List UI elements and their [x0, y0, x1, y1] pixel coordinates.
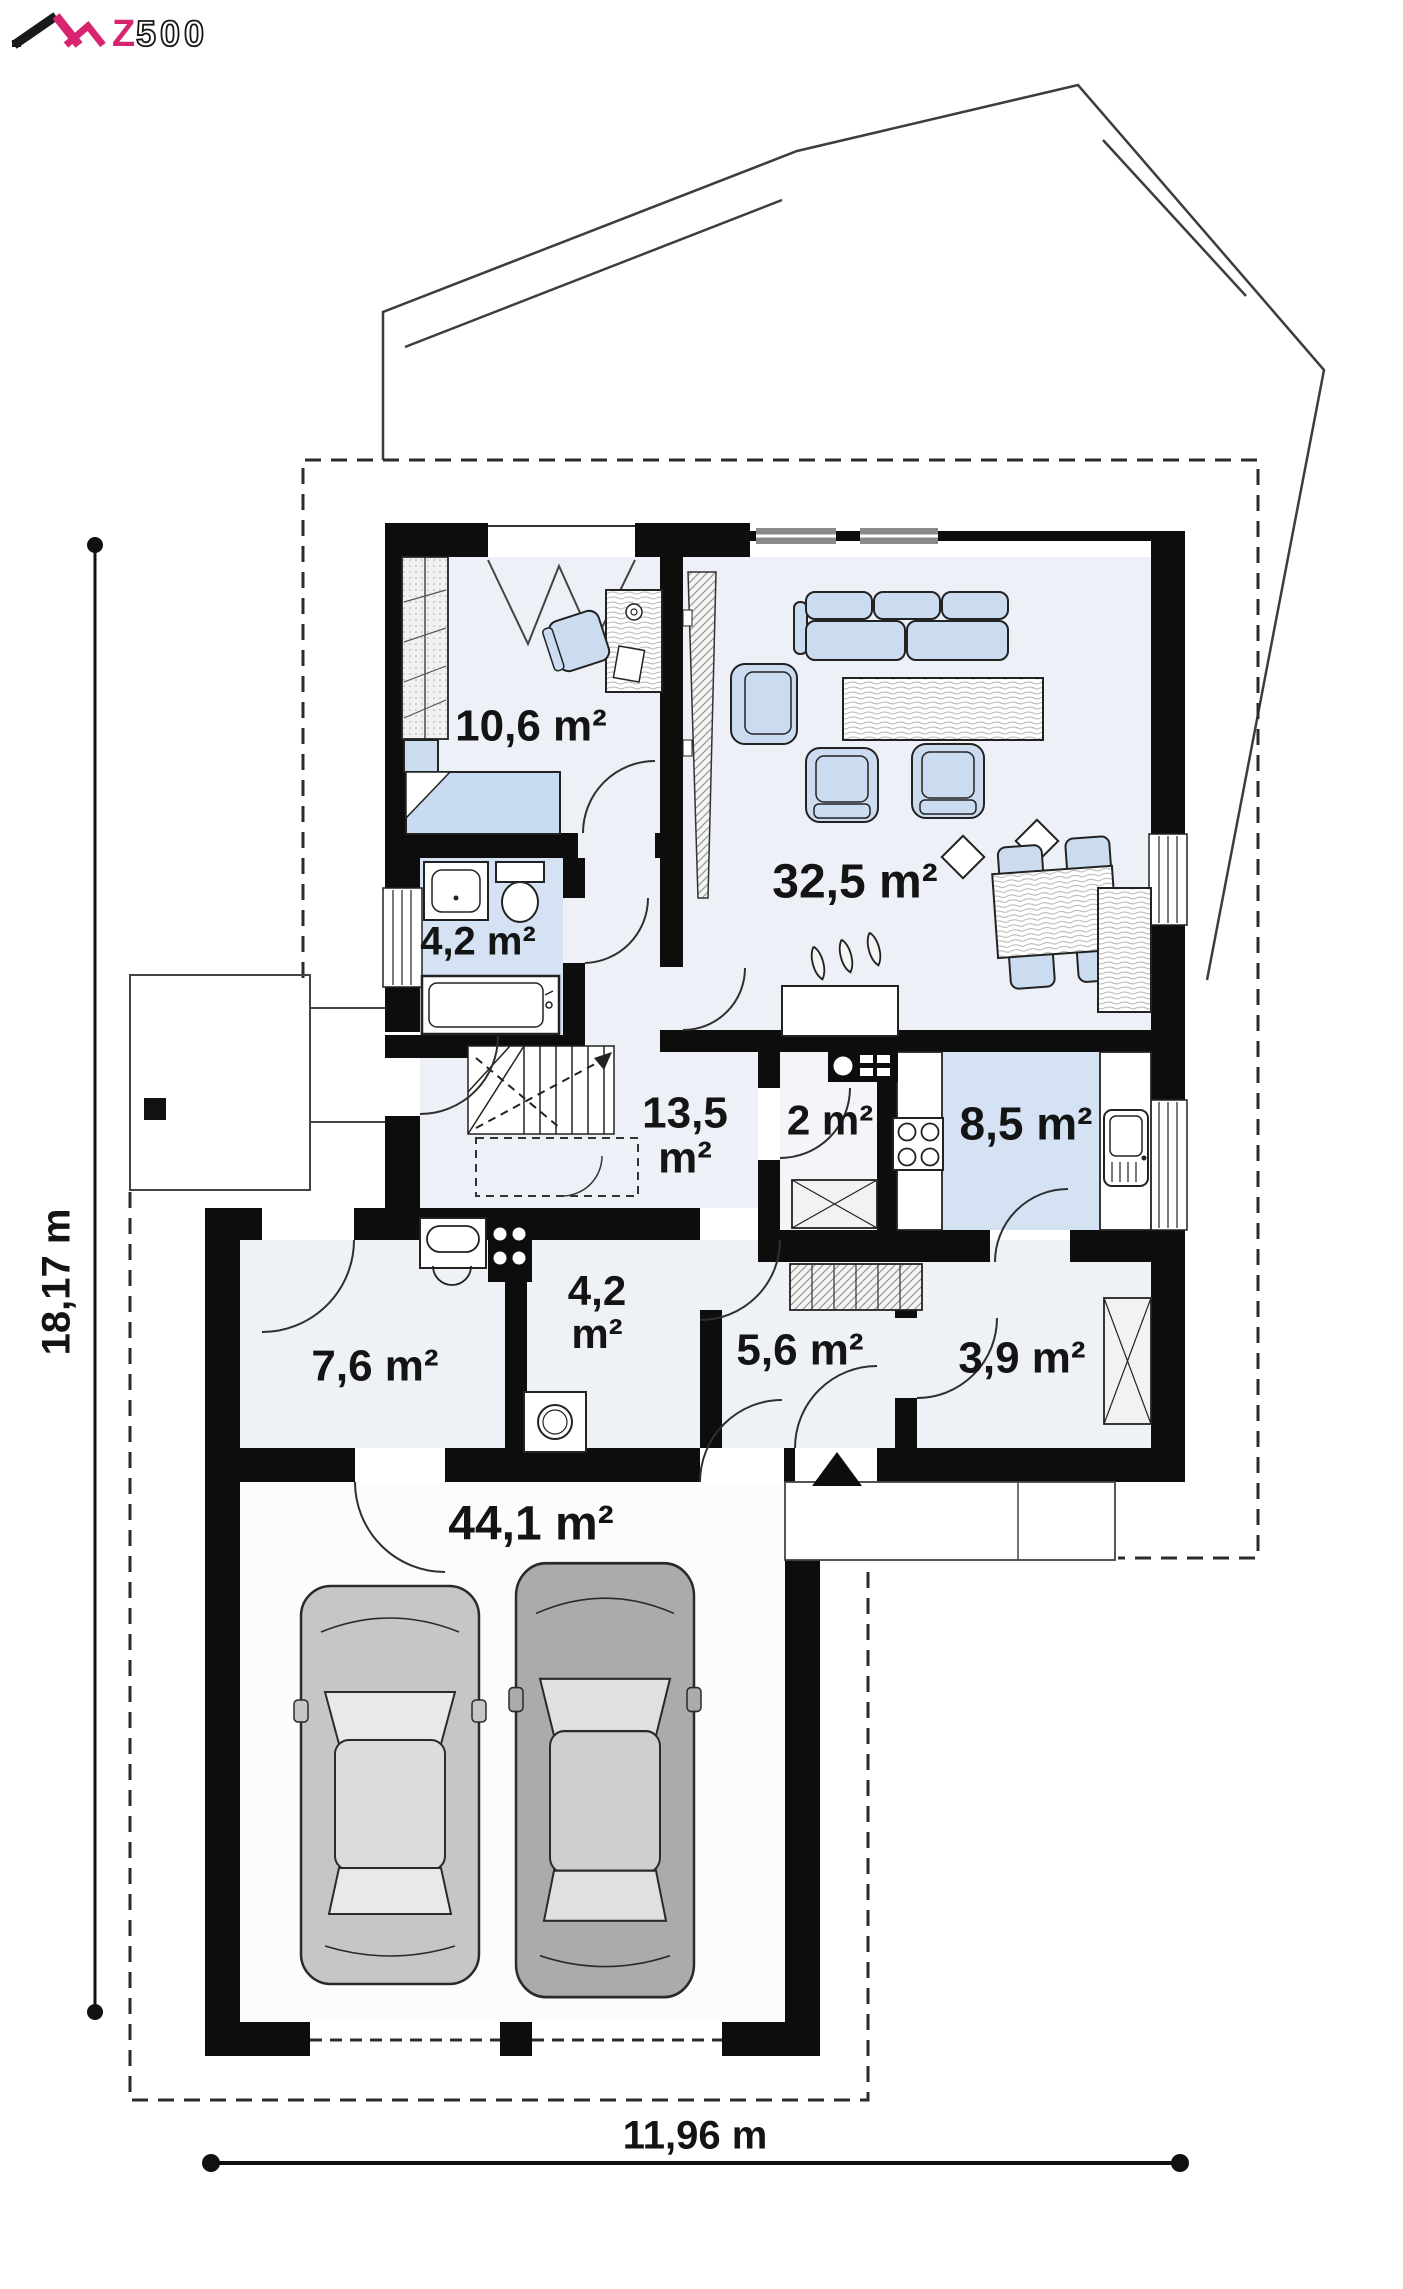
bed	[406, 772, 560, 834]
room-label-kitchen: 8,5 m²	[960, 1100, 1093, 1147]
desk-monitor	[613, 646, 644, 682]
wc-shelving	[792, 1180, 877, 1228]
armchair-1	[806, 748, 878, 822]
room-label-laundry: 4,2 m²	[547, 1269, 647, 1356]
room-label-utility: 7,6 m²	[311, 1343, 438, 1388]
kitchen-sink	[1104, 1110, 1148, 1186]
hob	[893, 1118, 943, 1170]
entrance-arrow-icon	[812, 1452, 862, 1486]
room-label-corridor: 5,6 m²	[736, 1327, 863, 1372]
canopy-pillar	[144, 1098, 166, 1120]
sink	[424, 862, 488, 920]
entry-closet	[1104, 1298, 1151, 1424]
coffee-table	[843, 678, 1043, 740]
room-label-bathroom: 4,2 m²	[420, 921, 536, 962]
washing-machine	[524, 1392, 586, 1452]
room-label-bedroom: 10,6 m²	[455, 703, 607, 748]
room-label-garage: 44,1 m²	[448, 1499, 613, 1548]
room-label-wc: 2 m²	[787, 1098, 873, 1141]
kitchen-window	[1149, 1100, 1187, 1230]
living-terrace-window	[1149, 834, 1187, 925]
bathroom-window	[383, 888, 422, 987]
car-right	[509, 1563, 701, 1997]
nightstand	[404, 740, 438, 772]
room-label-living-room: 32,5 m²	[772, 857, 937, 906]
armchair-left	[731, 664, 797, 744]
wc-stove-unit	[828, 1050, 898, 1082]
room-label-hall: 13,5 m²	[618, 1091, 752, 1182]
room-label-entry: 3,9 m²	[958, 1335, 1085, 1380]
floor-plan-page: Z 500	[0, 0, 1403, 2289]
desk-lamp	[626, 604, 642, 620]
armchair-2	[912, 744, 984, 818]
dimension-line-vertical	[87, 537, 103, 2020]
logo-text-500: 500	[136, 13, 208, 54]
tv-stand	[1098, 888, 1151, 1012]
coat-rack	[790, 1264, 922, 1310]
dimension-label-width: 11,96 m	[623, 2115, 768, 2156]
sofa	[794, 592, 1008, 660]
dimension-label-height: 18,17 m	[36, 1209, 77, 1356]
wardrobe	[402, 557, 448, 739]
side-canopy	[130, 975, 385, 1190]
logo-text-z: Z	[112, 13, 135, 55]
roof-logo-icon	[12, 16, 103, 47]
car-left	[294, 1586, 486, 1984]
bathtub	[422, 976, 559, 1034]
furnace	[488, 1218, 532, 1282]
brand-logo: Z 500	[12, 13, 208, 55]
